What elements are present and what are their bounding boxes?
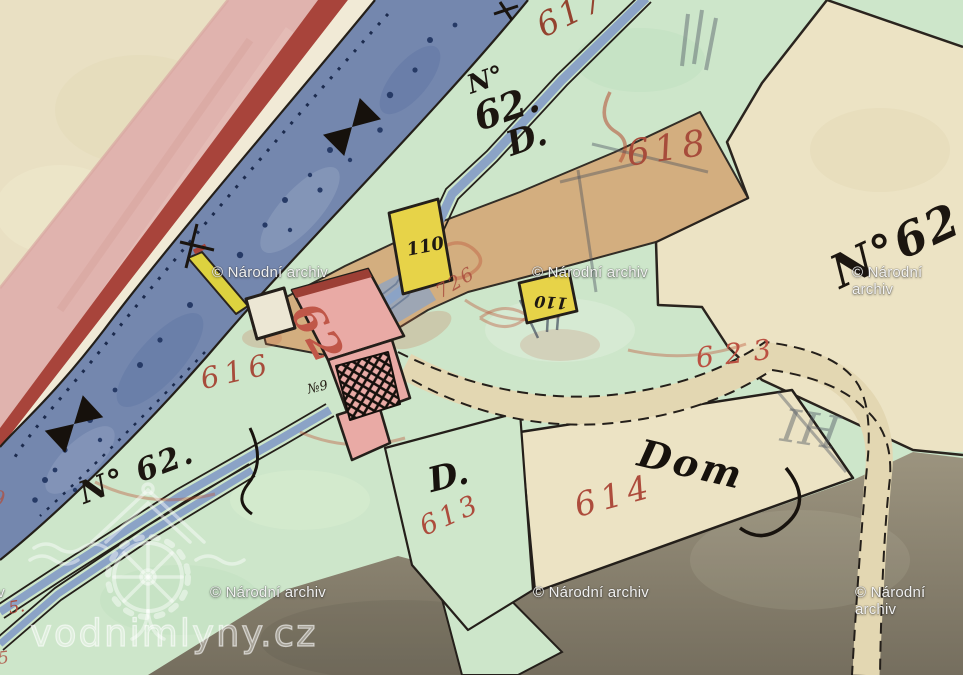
cadastral-map-scan: 617 618 616 613 614 623 726 9 5. 5 62 11… xyxy=(0,0,963,675)
annex-building xyxy=(246,288,295,339)
map-canvas xyxy=(0,0,963,675)
